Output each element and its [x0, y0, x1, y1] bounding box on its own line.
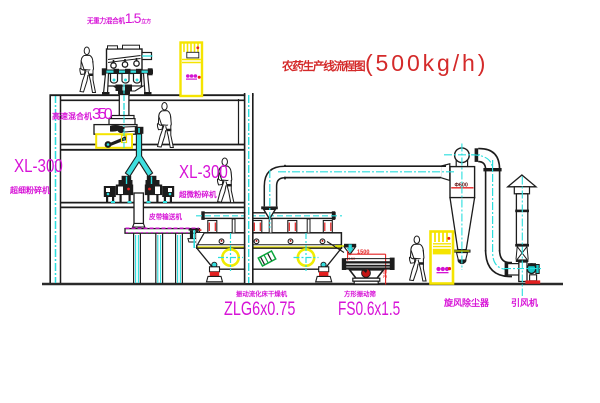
svg-text:Φ600: Φ600 [455, 183, 468, 189]
svg-text:1500: 1500 [357, 249, 369, 255]
